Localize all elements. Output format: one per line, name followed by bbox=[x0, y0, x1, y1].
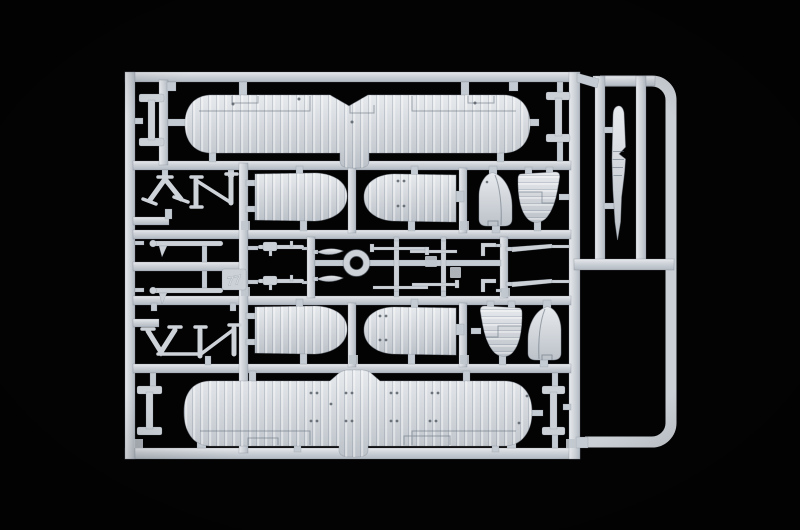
sprue-photo: 77 bbox=[0, 0, 800, 530]
photo-vignette bbox=[0, 0, 800, 530]
photo-of-model-kit-sprue: 77 bbox=[0, 0, 800, 530]
